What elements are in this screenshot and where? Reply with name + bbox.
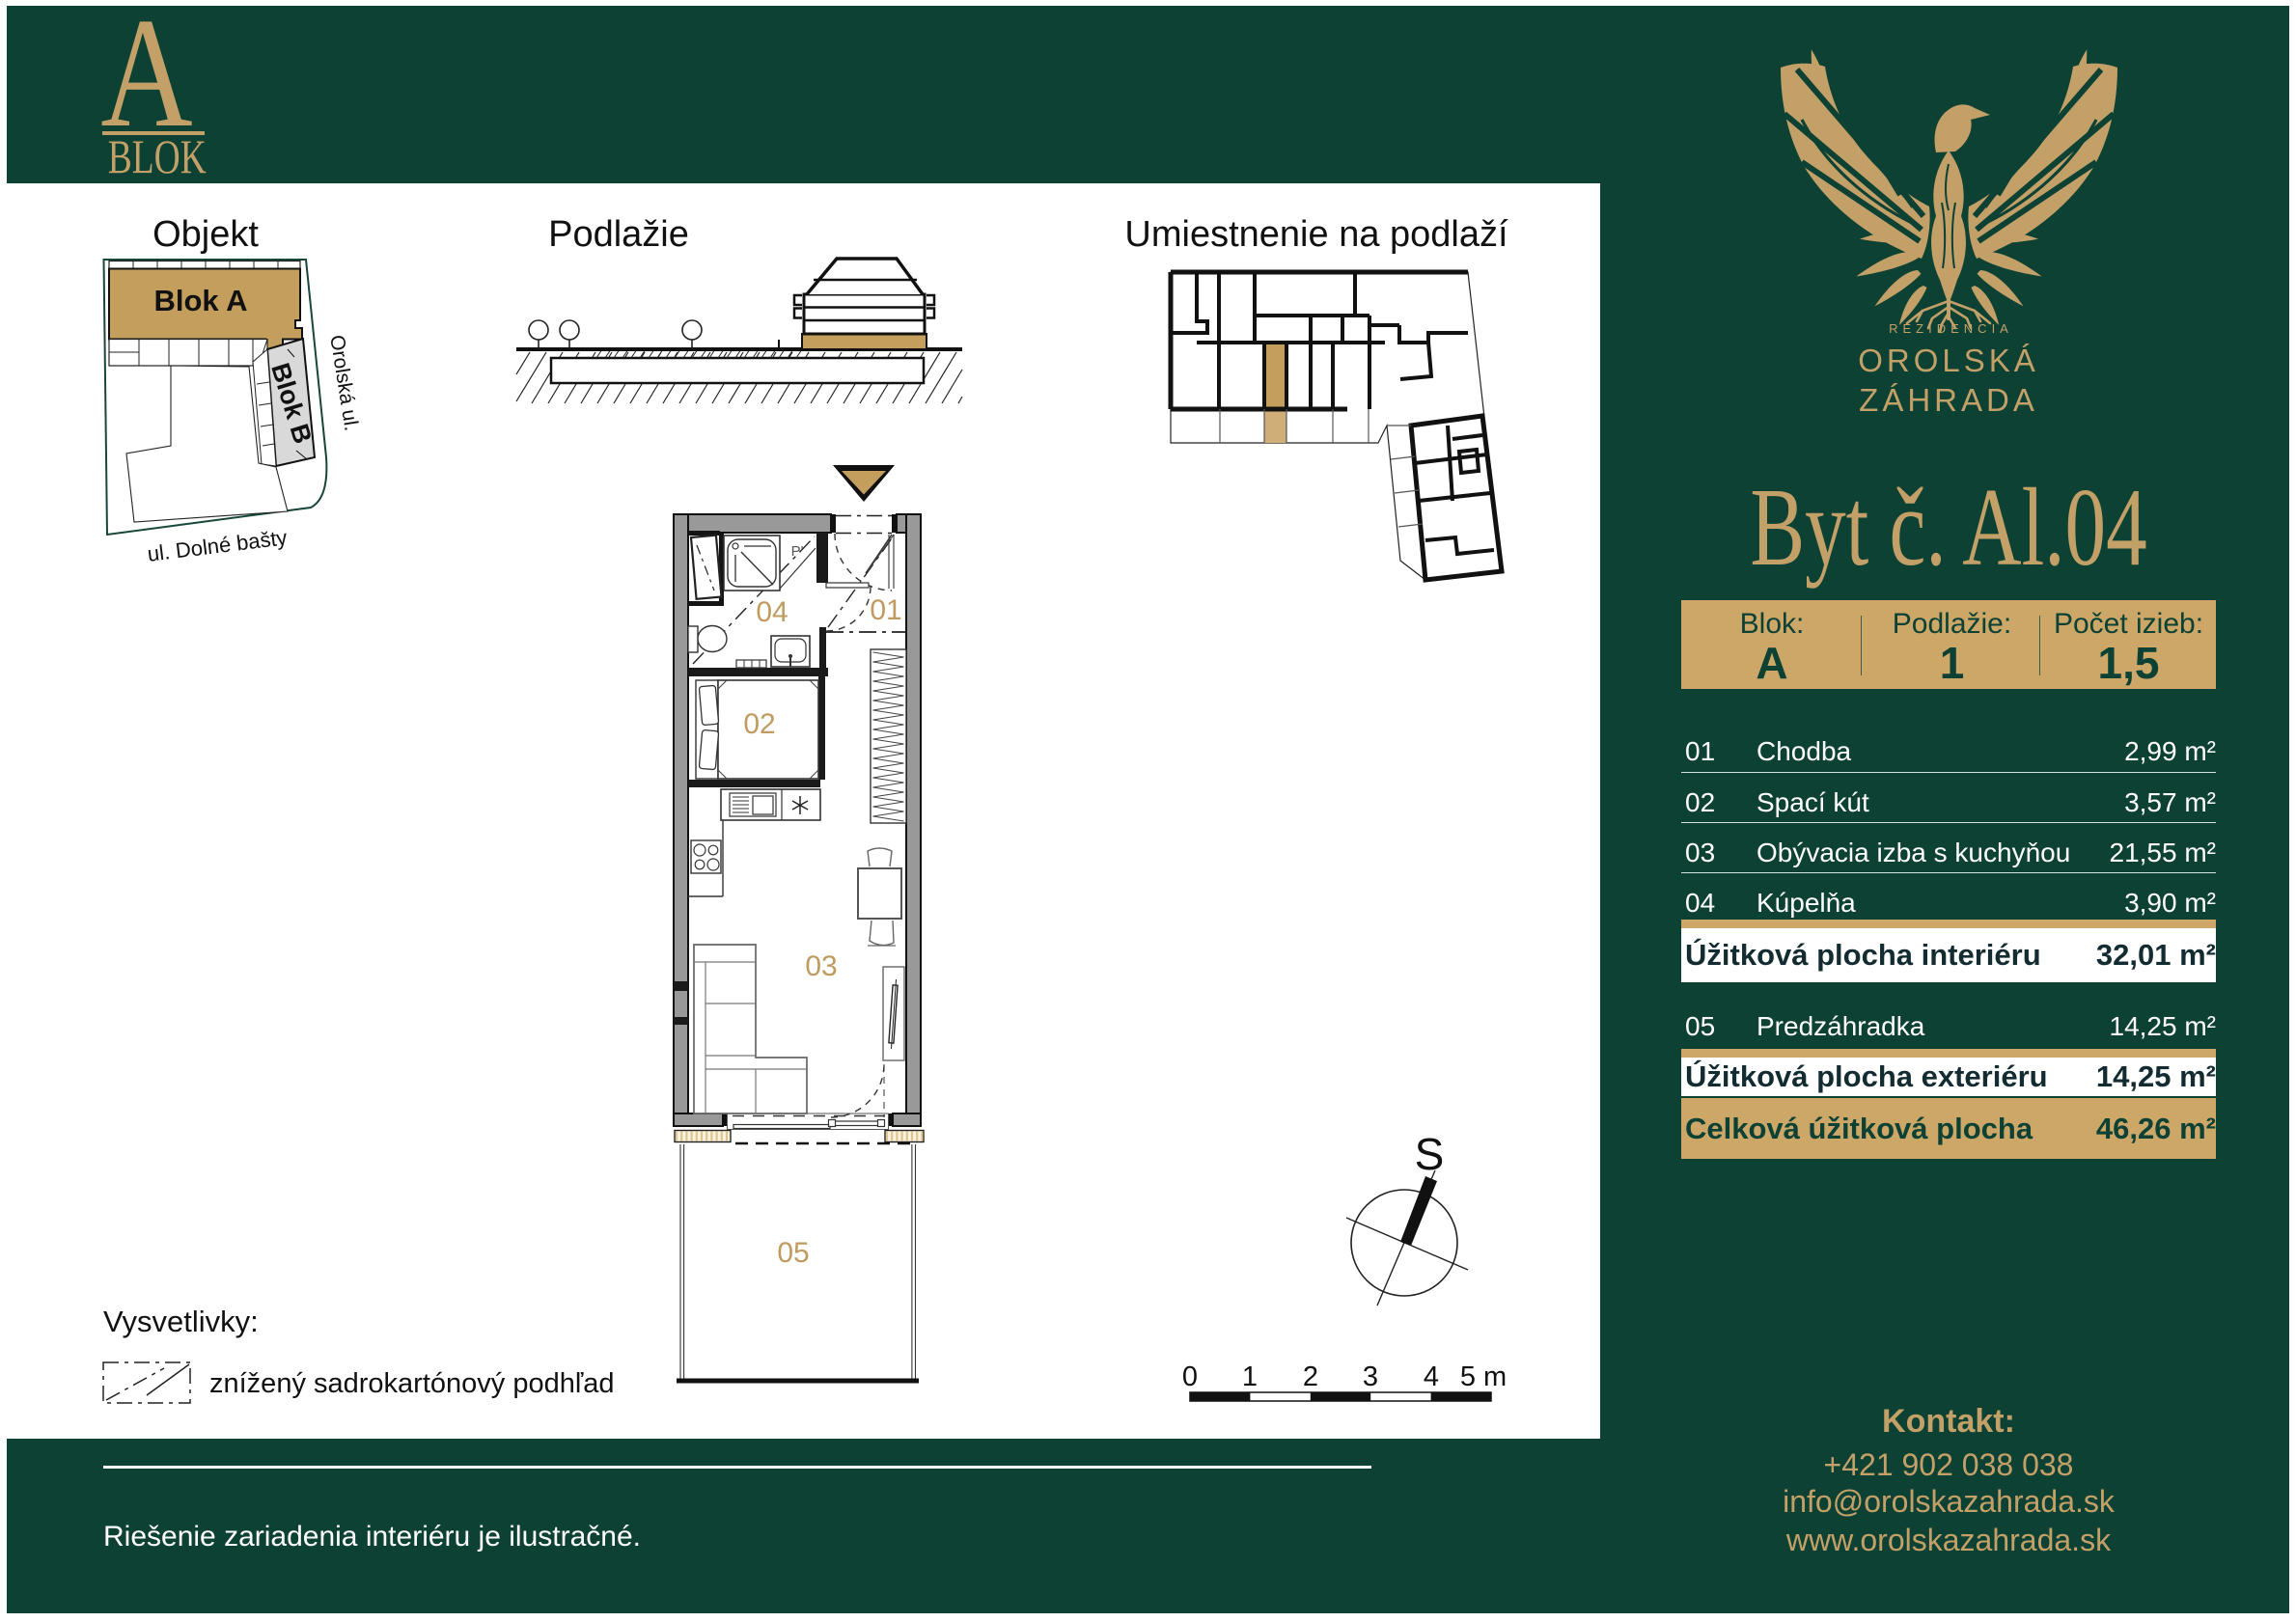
svg-text:0: 0	[1182, 1361, 1198, 1392]
svg-text:5 m: 5 m	[1460, 1361, 1507, 1392]
svg-text:Orolská ul.: Orolská ul.	[325, 334, 362, 433]
svg-text:02: 02	[743, 708, 775, 740]
svg-text:3: 3	[1363, 1361, 1378, 1392]
svg-text:ul. Dolné bašty: ul. Dolné bašty	[146, 525, 288, 566]
svg-text:4: 4	[1424, 1361, 1439, 1392]
svg-text:1: 1	[1242, 1361, 1258, 1392]
svg-text:Blok A: Blok A	[153, 284, 247, 317]
svg-text:S: S	[1415, 1129, 1445, 1179]
svg-text:05: 05	[777, 1237, 809, 1269]
svg-text:04: 04	[756, 596, 788, 628]
svg-text:03: 03	[805, 950, 837, 982]
svg-text:01: 01	[870, 594, 901, 626]
svg-text:P': P'	[791, 543, 804, 560]
svg-text:2: 2	[1303, 1361, 1318, 1392]
